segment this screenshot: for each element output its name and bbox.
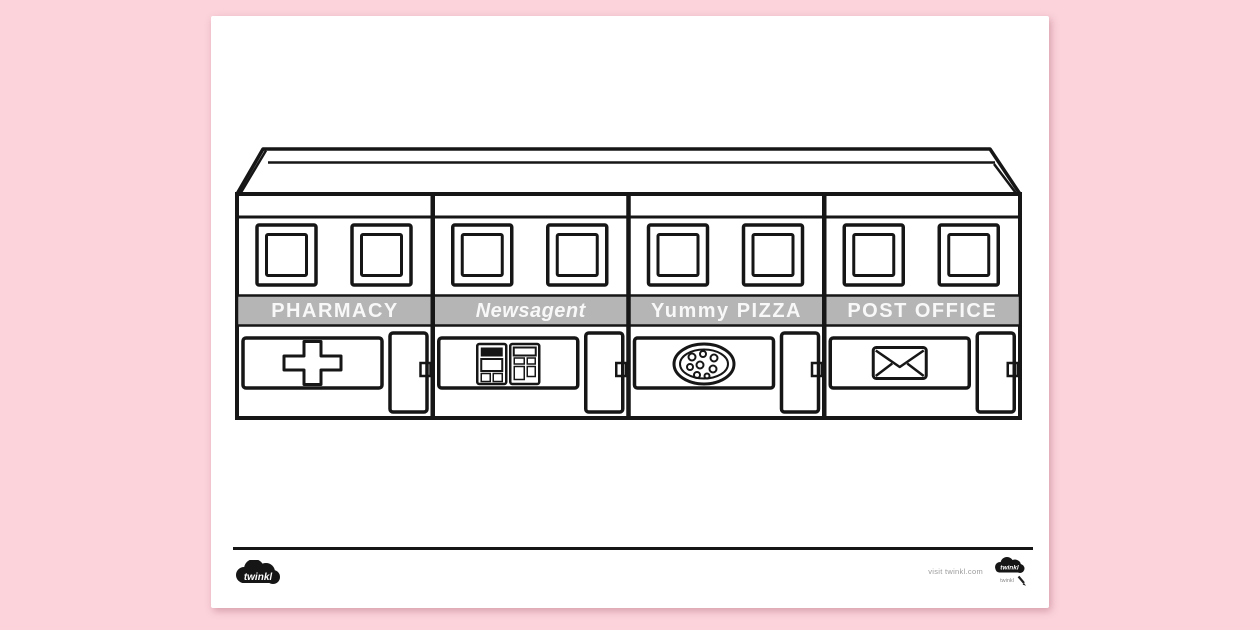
pizza-icon xyxy=(674,344,734,384)
upper-window xyxy=(939,225,998,285)
envelope-icon xyxy=(873,348,926,379)
shop-section-post-office: POST OFFICE xyxy=(824,225,1020,412)
shops-line-drawing: PHARMACY Newsagent xyxy=(211,16,1049,608)
shop-section-pizza: Yummy PIZZA xyxy=(629,225,825,412)
screenshot-canvas: { "document": { "type": "shops-colouring… xyxy=(0,0,1260,630)
upper-window xyxy=(453,225,512,285)
twinkl-wordmark: twinkl xyxy=(244,572,273,583)
twinkl-mini-logo: twinkl twinkl xyxy=(992,557,1028,591)
shop-sign-label: Yummy PIZZA xyxy=(651,300,802,322)
shop-display-window xyxy=(830,338,969,388)
upper-window xyxy=(257,225,316,285)
twinkl-wordmark-small: twinkl xyxy=(1000,565,1019,572)
shop-door xyxy=(390,333,431,412)
shop-section-pharmacy: PHARMACY xyxy=(237,225,433,412)
twinkl-footer-small-text: twinkl xyxy=(1000,578,1014,584)
newsstand-icon xyxy=(477,344,539,384)
shop-section-newsagent: Newsagent xyxy=(433,225,629,412)
worksheet-page: PHARMACY Newsagent xyxy=(211,16,1049,608)
shop-sign-label: Newsagent xyxy=(476,300,587,322)
footer-divider-line xyxy=(233,547,1033,550)
upper-window xyxy=(844,225,903,285)
shop-sign-label: PHARMACY xyxy=(271,300,399,322)
shop-door xyxy=(782,333,823,412)
shop-door xyxy=(977,333,1018,412)
upper-window xyxy=(744,225,803,285)
medical-cross-icon xyxy=(284,342,341,385)
visit-url-text: visit twinkl.com xyxy=(899,567,983,576)
shop-display-window xyxy=(439,338,578,388)
upper-window xyxy=(352,225,411,285)
upper-window xyxy=(548,225,607,285)
pencil-icon xyxy=(1019,577,1027,586)
shop-display-window xyxy=(243,338,382,388)
roof xyxy=(237,149,1020,194)
shop-door xyxy=(586,333,627,412)
shop-sign-label: POST OFFICE xyxy=(847,300,997,322)
twinkl-logo: twinkl xyxy=(234,560,282,588)
upper-window xyxy=(649,225,708,285)
